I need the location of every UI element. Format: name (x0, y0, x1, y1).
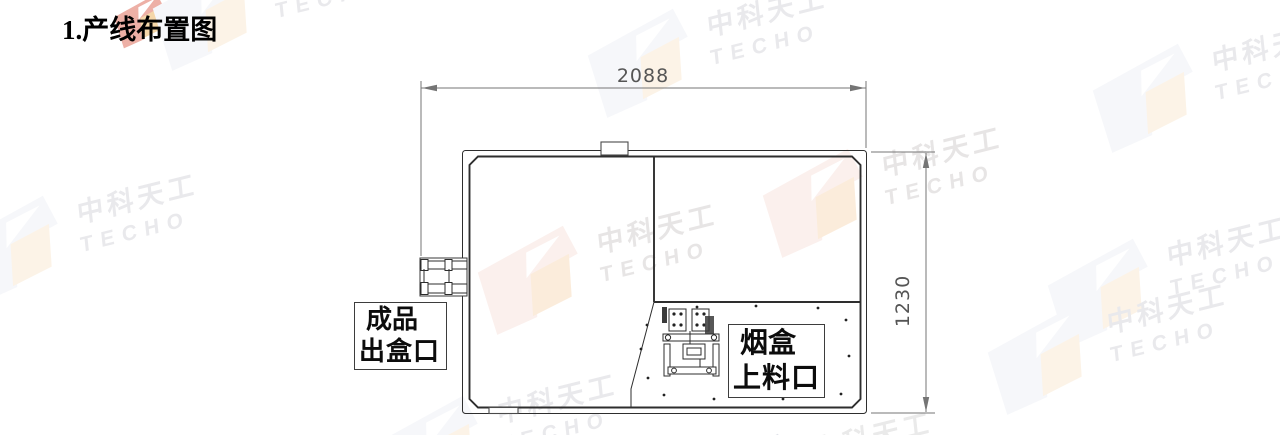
feeder-mechanism (662, 307, 719, 376)
outlet-label-line1: 成品 (358, 304, 443, 336)
outlet-conveyor (420, 258, 467, 296)
dimension-width: 2088 (421, 65, 866, 256)
dimension-height-label: 1230 (892, 275, 914, 327)
page-title: 1.产线布置图 (62, 8, 217, 47)
inlet-label-line2: 上料口 (732, 361, 821, 396)
outlet-label-line2: 出盒口 (358, 336, 443, 368)
inlet-label: 烟盒 上料口 (728, 324, 825, 398)
page: 中科天工TECHO中科天工TECHO中科天工TECHO中科天工TECHO中科天工… (0, 0, 1280, 435)
production-line-diagram: 2088 1230 (0, 0, 1280, 435)
inlet-label-line1: 烟盒 (732, 326, 821, 361)
outlet-label: 成品 出盒口 (354, 302, 447, 370)
dimension-width-label: 2088 (617, 65, 669, 87)
dimension-height: 1230 (871, 152, 935, 413)
